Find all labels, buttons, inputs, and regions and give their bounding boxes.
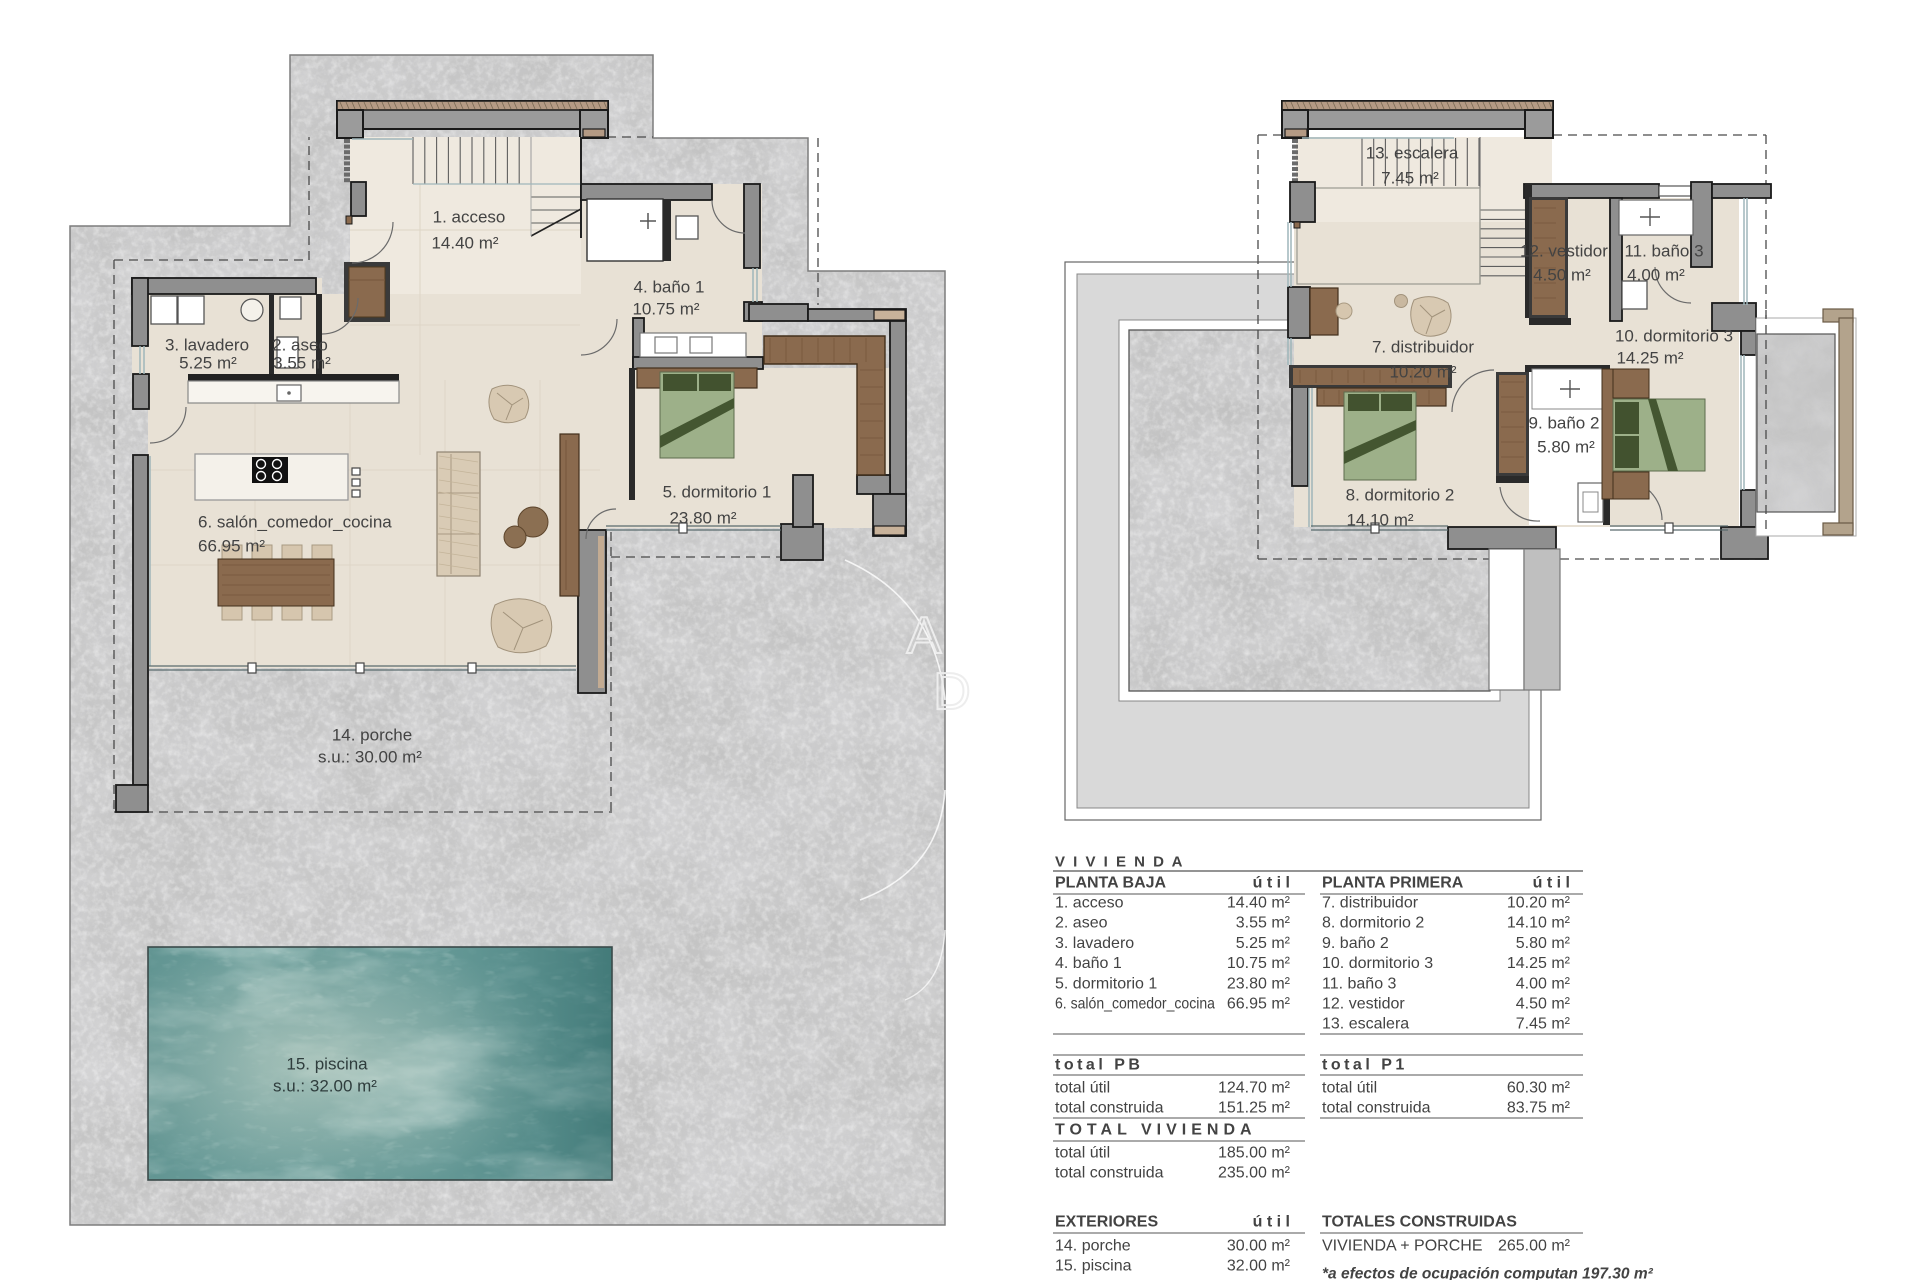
svg-text:5.80 m²: 5.80 m² <box>1537 438 1595 457</box>
svg-text:ú t i l: ú t i l <box>1533 875 1570 892</box>
svg-text:total PB: total PB <box>1055 1057 1143 1074</box>
svg-text:11. baño 3: 11. baño 3 <box>1322 975 1397 992</box>
svg-text:235.00 m²: 235.00 m² <box>1218 1165 1291 1182</box>
svg-text:s.u.: 30.00 m²: s.u.: 30.00 m² <box>318 748 422 767</box>
svg-text:124.70 m²: 124.70 m² <box>1218 1080 1291 1097</box>
svg-text:3.55 m²: 3.55 m² <box>1236 915 1291 932</box>
svg-text:12. vestidor: 12. vestidor <box>1322 996 1405 1013</box>
svg-text:7. distribuidor: 7. distribuidor <box>1322 895 1419 912</box>
svg-text:PLANTA PRIMERA: PLANTA PRIMERA <box>1322 875 1464 892</box>
svg-text:10. dormitorio 3: 10. dormitorio 3 <box>1322 955 1433 972</box>
svg-text:6. salón_comedor_cocina: 6. salón_comedor_cocina <box>198 513 392 532</box>
svg-text:10.75 m²: 10.75 m² <box>632 300 699 319</box>
svg-text:8. dormitorio 2: 8. dormitorio 2 <box>1322 915 1424 932</box>
svg-text:10.20 m²: 10.20 m² <box>1389 363 1456 382</box>
svg-text:4.50 m²: 4.50 m² <box>1533 266 1591 285</box>
svg-text:A: A <box>907 607 942 665</box>
svg-text:8. dormitorio 2: 8. dormitorio 2 <box>1346 486 1455 505</box>
svg-text:4. baño 1: 4. baño 1 <box>1055 955 1122 972</box>
svg-text:15. piscina: 15. piscina <box>286 1055 368 1074</box>
svg-text:ú t i l: ú t i l <box>1253 875 1290 892</box>
svg-text:13. escalera: 13. escalera <box>1366 144 1459 163</box>
svg-text:14.40 m²: 14.40 m² <box>1227 895 1291 912</box>
svg-text:7.45 m²: 7.45 m² <box>1516 1016 1571 1033</box>
svg-text:32.00 m²: 32.00 m² <box>1227 1258 1291 1275</box>
svg-text:3.55 m²: 3.55 m² <box>273 354 331 373</box>
svg-text:151.25 m²: 151.25 m² <box>1218 1100 1291 1117</box>
svg-text:10. dormitorio 3: 10. dormitorio 3 <box>1615 327 1733 346</box>
svg-text:1. acceso: 1. acceso <box>433 208 506 227</box>
svg-text:EXTERIORES: EXTERIORES <box>1055 1214 1158 1231</box>
svg-text:V I V I E N D A: V I V I E N D A <box>1055 854 1184 871</box>
svg-text:5. dormitorio 1: 5. dormitorio 1 <box>663 483 772 502</box>
svg-text:VIVIENDA + PORCHE: VIVIENDA + PORCHE <box>1322 1238 1483 1255</box>
svg-text:23.80 m²: 23.80 m² <box>669 509 736 528</box>
svg-text:9. baño 2: 9. baño 2 <box>1322 935 1389 952</box>
svg-text:4.00 m²: 4.00 m² <box>1516 975 1571 992</box>
svg-text:total construida: total construida <box>1055 1100 1164 1117</box>
svg-text:4.00 m²: 4.00 m² <box>1627 266 1685 285</box>
svg-text:11. baño 3: 11. baño 3 <box>1624 242 1703 261</box>
svg-text:30.00 m²: 30.00 m² <box>1227 1238 1291 1255</box>
svg-text:66.95 m²: 66.95 m² <box>1227 996 1291 1013</box>
svg-text:14.40 m²: 14.40 m² <box>431 234 498 253</box>
svg-text:66.95 m²: 66.95 m² <box>198 537 265 556</box>
svg-text:10.75 m²: 10.75 m² <box>1227 955 1291 972</box>
svg-text:23.80 m²: 23.80 m² <box>1227 975 1291 992</box>
svg-text:83.75 m²: 83.75 m² <box>1507 1100 1571 1117</box>
svg-text:5. dormitorio 1: 5. dormitorio 1 <box>1055 975 1157 992</box>
svg-text:7.45 m²: 7.45 m² <box>1381 169 1439 188</box>
svg-text:total construida: total construida <box>1322 1100 1431 1117</box>
svg-text:12. vestidor: 12. vestidor <box>1520 242 1608 261</box>
svg-text:6. salón_comedor_cocina: 6. salón_comedor_cocina <box>1055 996 1215 1013</box>
svg-text:14. porche: 14. porche <box>1055 1238 1131 1255</box>
svg-text:2. aseo: 2. aseo <box>1055 915 1108 932</box>
svg-text:5.25 m²: 5.25 m² <box>179 354 237 373</box>
svg-text:5.25 m²: 5.25 m² <box>1236 935 1291 952</box>
svg-text:14.25 m²: 14.25 m² <box>1507 955 1571 972</box>
svg-text:3. lavadero: 3. lavadero <box>1055 935 1134 952</box>
svg-text:14. porche: 14. porche <box>332 726 412 745</box>
svg-text:14.10 m²: 14.10 m² <box>1507 915 1571 932</box>
svg-text:s.u.: 32.00 m²: s.u.: 32.00 m² <box>273 1077 377 1096</box>
svg-text:PLANTA BAJA: PLANTA BAJA <box>1055 875 1167 892</box>
svg-text:total útil: total útil <box>1055 1145 1110 1162</box>
svg-text:14.25 m²: 14.25 m² <box>1616 349 1683 368</box>
svg-text:total construida: total construida <box>1055 1165 1164 1182</box>
svg-text:D: D <box>933 663 971 721</box>
svg-text:185.00 m²: 185.00 m² <box>1218 1145 1291 1162</box>
svg-text:3. lavadero: 3. lavadero <box>165 336 249 355</box>
svg-text:14.10 m²: 14.10 m² <box>1346 511 1413 530</box>
svg-text:ú t i l: ú t i l <box>1253 1214 1290 1231</box>
svg-text:9. baño 2: 9. baño 2 <box>1529 414 1600 433</box>
svg-text:1. acceso: 1. acceso <box>1055 895 1124 912</box>
svg-text:TOTALES CONSTRUIDAS: TOTALES CONSTRUIDAS <box>1322 1214 1517 1231</box>
svg-text:60.30 m²: 60.30 m² <box>1507 1080 1571 1097</box>
svg-text:4.50 m²: 4.50 m² <box>1516 996 1571 1013</box>
svg-text:13. escalera: 13. escalera <box>1322 1016 1409 1033</box>
svg-text:TOTAL VIVIENDA: TOTAL VIVIENDA <box>1055 1122 1257 1139</box>
svg-text:total útil: total útil <box>1055 1080 1110 1097</box>
svg-text:*a efectos de ocupación comput: *a efectos de ocupación computan 197.30 … <box>1322 1266 1654 1280</box>
svg-text:total útil: total útil <box>1322 1080 1377 1097</box>
svg-text:5.80 m²: 5.80 m² <box>1516 935 1571 952</box>
svg-text:10.20 m²: 10.20 m² <box>1507 895 1571 912</box>
svg-text:7. distribuidor: 7. distribuidor <box>1372 338 1474 357</box>
svg-text:total P1: total P1 <box>1322 1057 1408 1074</box>
svg-text:265.00 m²: 265.00 m² <box>1498 1238 1571 1255</box>
svg-text:2. aseo: 2. aseo <box>272 336 328 355</box>
svg-text:15. piscina: 15. piscina <box>1055 1258 1132 1275</box>
svg-text:4. baño 1: 4. baño 1 <box>634 278 705 297</box>
